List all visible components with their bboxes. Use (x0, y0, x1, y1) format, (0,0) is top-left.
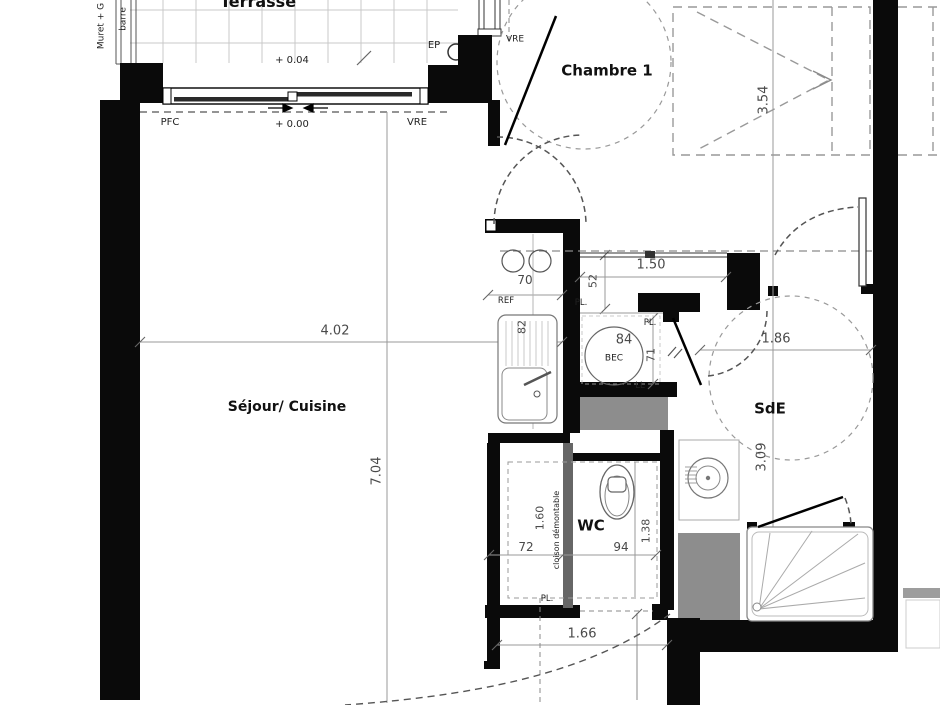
wall-segment (873, 0, 898, 652)
wall-segment (638, 293, 700, 312)
dim-chambre-width: 3.54 (758, 86, 771, 115)
room-label-wc: WC (577, 519, 605, 534)
room-label-sde: SdE (754, 402, 786, 417)
neighbor-fixture (906, 600, 940, 648)
dim-sejour-height: 7.04 (371, 457, 384, 486)
dim-wc-left-width: 72 (518, 541, 533, 553)
technical-shaft (580, 397, 668, 430)
door-leaf (673, 318, 701, 385)
wall-segment (100, 100, 140, 700)
annotation-barreaudage: barre (120, 7, 129, 31)
wall-segment (120, 63, 163, 103)
wall-segment (485, 219, 580, 233)
wall-segment (667, 618, 700, 705)
washbasin-drain (706, 476, 710, 480)
dim-placard-width: 1.50 (637, 259, 666, 272)
hob-burner-icon (529, 250, 551, 272)
toilet-seat (608, 477, 626, 492)
dim-sde-height: 3.09 (756, 443, 769, 472)
door-jamb (663, 310, 679, 322)
door-leaf (859, 198, 866, 286)
dim-sejour-width: 4.02 (321, 325, 350, 338)
wall-segment (428, 65, 492, 103)
annotation-pfc: PFC (161, 118, 180, 128)
door-swing-arc (497, 137, 586, 225)
annotation-pl-bec: PL. (644, 319, 657, 328)
dim-entry-width: 1.66 (568, 628, 597, 641)
shower-tray (747, 527, 873, 621)
dim-bec-width: 84 (616, 334, 633, 347)
hob-burner-icon (502, 250, 524, 272)
wall-segment (570, 453, 672, 461)
dim-wc-right-width: 94 (613, 541, 628, 553)
wall-segment (563, 233, 580, 433)
dim-placard-depth: 52 (588, 274, 599, 288)
annotation-pl-placard: PL. (575, 299, 588, 308)
shower-door-leaf (758, 497, 843, 527)
annotation-pl-wc: PL. (541, 595, 554, 604)
removable-partition (563, 443, 573, 608)
annotation-ep: EP (428, 41, 440, 51)
wall-segment (488, 433, 570, 443)
door-swing-arc (775, 207, 858, 255)
dim-bec-height: 71 (646, 348, 657, 362)
clearance-circle (709, 296, 873, 460)
annotation-ref: REF (498, 297, 514, 306)
room-label-terrasse: Terrasse (220, 0, 296, 10)
dim-kitchen-width: 70 (517, 274, 532, 286)
annotation-bec: BEC (605, 355, 623, 364)
technical-shaft (678, 533, 740, 620)
shower-drain (753, 603, 761, 611)
room-label-sejour-cuisine: Séjour/ Cuisine (228, 400, 347, 414)
chambre-window (478, 0, 501, 36)
annotation-muret: Muret + G (98, 3, 107, 49)
wall-segment (660, 430, 674, 610)
match-marks (668, 347, 682, 358)
neighbor-shaft (903, 588, 940, 598)
level-floor: + 0.00 (275, 120, 309, 130)
annotation-vre-bay: VRE (407, 118, 427, 128)
closet-outline (673, 7, 870, 155)
annotation-vre-window: VRE (506, 36, 524, 45)
closet-chevron (697, 12, 829, 150)
dim-sink-width: 82 (517, 320, 528, 334)
wall-segment (488, 100, 500, 146)
wall-segment (487, 443, 500, 669)
dim-wc-height: 1.60 (535, 506, 546, 531)
closet-chevron-tip (813, 71, 831, 89)
bay-window (163, 88, 428, 112)
sink-drain (534, 391, 540, 397)
floor-plan: Terrasse Chambre 1 Séjour/ Cuisine WC Sd… (0, 0, 940, 705)
wall-segment (484, 661, 498, 669)
dim-wc-right-height: 1.38 (641, 519, 652, 544)
entry-door-swing (345, 614, 670, 705)
wall-segment (700, 620, 898, 652)
plan-linework (0, 0, 940, 705)
level-terrace: + 0.04 (275, 56, 309, 66)
dimension-tick (357, 51, 371, 65)
wall-segment (727, 253, 760, 310)
room-label-chambre1: Chambre 1 (561, 64, 652, 79)
slide-direction-arrows (268, 104, 328, 112)
annotation-ll: LL (635, 382, 644, 391)
wall-segment (458, 35, 492, 66)
annotation-cloison: cloison démontable (553, 491, 561, 569)
dim-sde-width: 1.86 (762, 333, 791, 346)
